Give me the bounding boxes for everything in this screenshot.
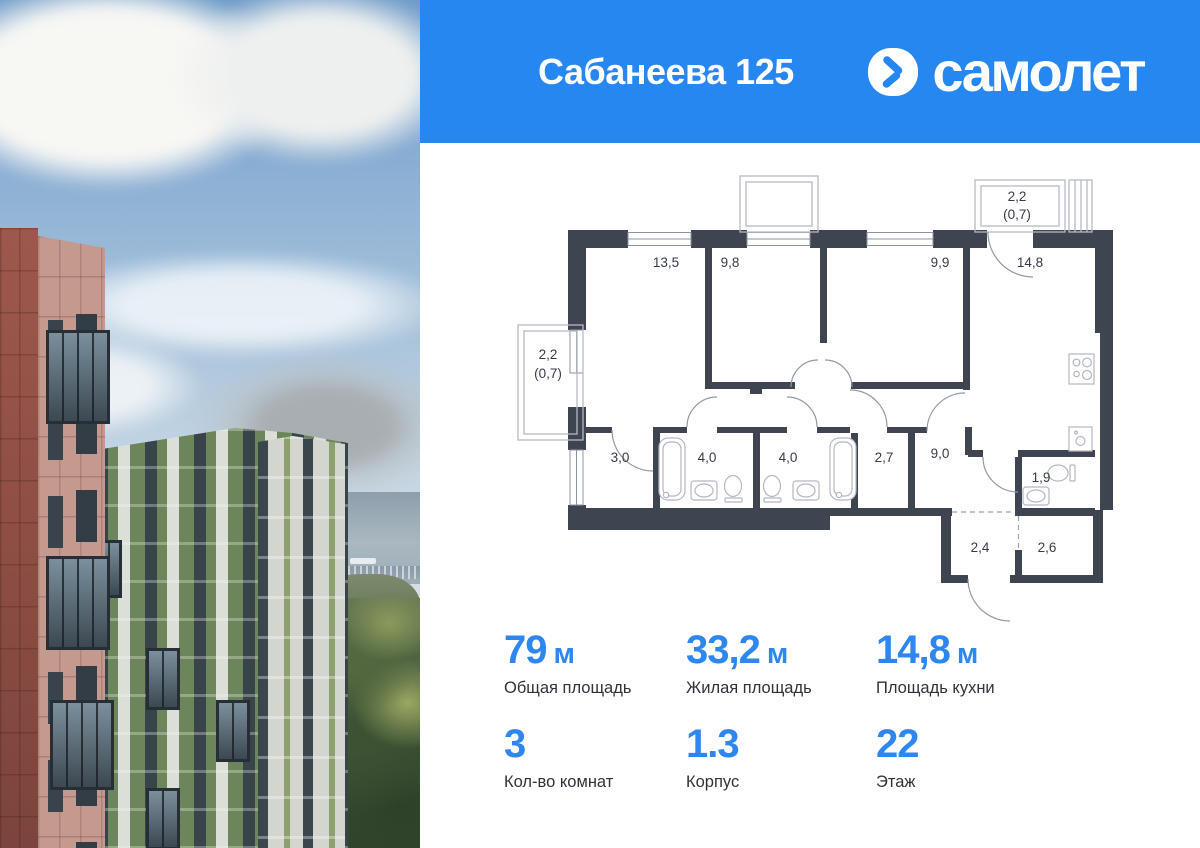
stat-kitchen-area: 14,8м Площадь кухни [876, 630, 1096, 698]
stats-grid: 79м Общая площадь 33,2м Жилая площадь 14… [504, 630, 1096, 792]
room-area-label: 4,0 [779, 450, 798, 465]
room-area-label: 13,5 [653, 255, 679, 270]
toilet-icon [1070, 465, 1075, 481]
stat-total-area: 79м Общая площадь [504, 630, 686, 698]
samolet-arrow-icon [867, 46, 919, 98]
stat-label: Кол-во комнат [504, 773, 686, 792]
sink-icon [1027, 490, 1045, 502]
toilet-icon [764, 476, 781, 497]
stove-icon [1069, 354, 1094, 384]
stat-value: 3 [504, 722, 525, 766]
kitchen-sink-icon [1076, 437, 1085, 446]
shower-icon [836, 492, 841, 497]
project-title: Сабанеева 125 [538, 51, 794, 93]
room-area-label: 4,0 [698, 450, 717, 465]
stat-label: Корпус [686, 773, 876, 792]
stat-unit: м [554, 638, 574, 670]
stove-icon [1083, 371, 1092, 380]
white-tower [258, 436, 345, 848]
stat-value: 1.3 [686, 722, 739, 766]
stat-value: 14,8 [876, 628, 950, 672]
shower-icon [663, 492, 668, 497]
stat-label: Этаж [876, 773, 1096, 792]
room-area-label: 9,9 [931, 255, 950, 270]
project-photo [0, 0, 420, 848]
balcony-area-label: (0,7) [534, 366, 562, 381]
balcony-area-label: 2,2 [1008, 189, 1027, 204]
balcony-glass [216, 700, 250, 762]
bathtub-icon [663, 442, 681, 496]
stat-building: 1.3 Корпус [686, 724, 876, 792]
ship [350, 558, 376, 564]
stat-label: Жилая площадь [686, 679, 876, 698]
room-area-label: 2,6 [1038, 540, 1057, 555]
balcony-glass [46, 330, 110, 424]
balcony-glass [46, 556, 110, 650]
flat-card: Сабанеева 125 самолет [420, 0, 1200, 848]
red-building-side [0, 228, 38, 848]
toilet-icon [725, 476, 742, 497]
card-header: Сабанеева 125 самолет [420, 0, 1200, 143]
stat-value: 33,2 [686, 628, 760, 672]
room-area-label: 2,4 [971, 540, 990, 555]
balcony-area-label: (0,7) [1003, 207, 1031, 222]
brand-logo: самолет [867, 44, 1144, 100]
room-area-label: 1,9 [1032, 470, 1051, 485]
listing-card: Сабанеева 125 самолет [0, 0, 1200, 848]
stove-icon [1073, 359, 1080, 366]
stove-icon [1074, 371, 1079, 376]
room-area-label: 9,0 [931, 446, 950, 461]
toilet-icon [1048, 465, 1068, 481]
room-area-label: 2,7 [875, 450, 894, 465]
stat-value: 79 [504, 628, 547, 672]
toilet-icon [764, 498, 781, 502]
toilet-icon [725, 498, 742, 502]
room-area-label: 9,8 [721, 255, 740, 270]
sink-icon [797, 484, 815, 497]
kitchen-sink-icon [1075, 431, 1078, 434]
balcony-glass [146, 788, 180, 848]
stat-rooms-count: 3 Кол-во комнат [504, 724, 686, 792]
stove-icon [1083, 358, 1092, 367]
balcony-glass [146, 648, 180, 710]
walls [568, 230, 1113, 583]
stat-living-area: 33,2м Жилая площадь [686, 630, 876, 698]
stat-value: 22 [876, 722, 919, 766]
stat-unit: м [957, 638, 977, 670]
balcony-glass [50, 700, 114, 790]
room-area-label: 14,8 [1017, 255, 1043, 270]
balcony-area-label: 2,2 [539, 347, 558, 362]
stat-floor: 22 Этаж [876, 724, 1096, 792]
stat-label: Площадь кухни [876, 679, 1096, 698]
floor-plan: 13,5 9,8 9,9 14,8 3,0 4,0 4,0 2,7 9,0 1,… [500, 155, 1122, 637]
stat-unit: м [767, 638, 787, 670]
sink-icon [695, 484, 713, 497]
room-area-label: 3,0 [611, 450, 630, 465]
stat-label: Общая площадь [504, 679, 686, 698]
brand-name: самолет [932, 44, 1144, 100]
bathtub-icon [834, 442, 852, 496]
